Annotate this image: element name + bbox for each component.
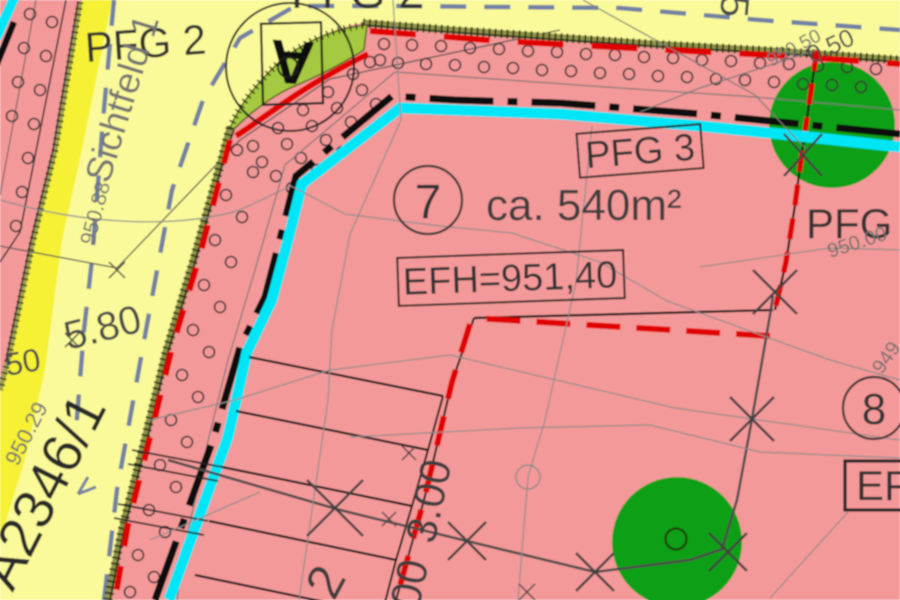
- svg-text:ca. 540m²: ca. 540m²: [486, 181, 682, 230]
- svg-text:EFH=951,40: EFH=951,40: [402, 254, 618, 303]
- svg-text:8: 8: [862, 385, 886, 434]
- svg-text:A: A: [267, 26, 316, 98]
- svg-text:PFG 2: PFG 2: [291, 0, 424, 18]
- svg-text:PFG 3: PFG 3: [584, 127, 697, 177]
- svg-text:50: 50: [2, 341, 43, 383]
- svg-text:EF: EF: [856, 462, 900, 509]
- svg-text:7: 7: [415, 176, 442, 229]
